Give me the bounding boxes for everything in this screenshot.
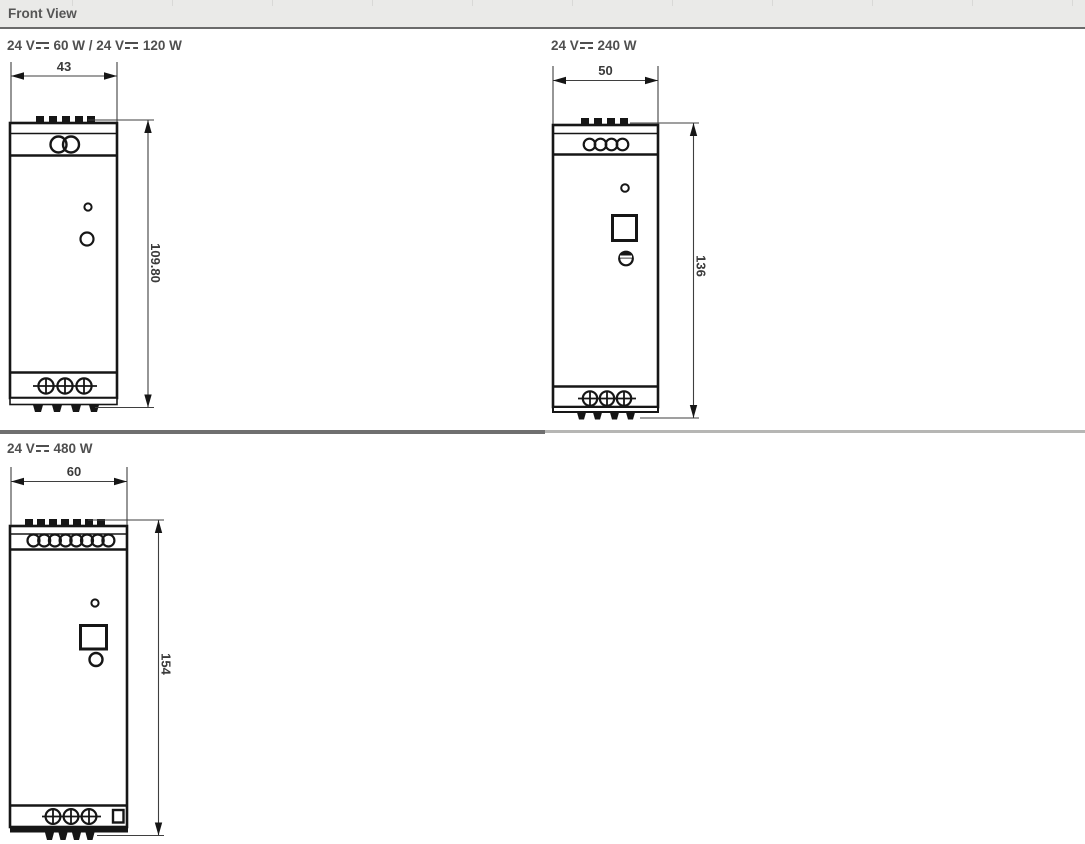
- din-clip-tooth: [593, 413, 602, 420]
- din-clip-tooth: [71, 405, 81, 412]
- bottom-strip: [10, 398, 117, 405]
- din-clip-tooth: [610, 413, 619, 420]
- device-body-outline: [10, 526, 127, 827]
- bottom-strip: [10, 827, 128, 833]
- arrowhead: [11, 478, 24, 485]
- arrowhead: [155, 823, 162, 836]
- width-dimension-value: 50: [598, 63, 612, 78]
- din-clip-tooth: [52, 405, 62, 412]
- din-clip-tooth: [59, 833, 68, 841]
- din-clip-tooth: [72, 833, 81, 841]
- bottom-strip: [553, 407, 658, 412]
- arrowhead: [645, 77, 658, 84]
- arrowhead: [144, 395, 151, 408]
- height-dimension-value: 154: [159, 653, 174, 675]
- width-dimension-value: 60: [67, 464, 81, 479]
- width-dimension-value: 43: [57, 59, 71, 74]
- device-240w-drawing: [553, 118, 658, 420]
- din-clip-tooth: [33, 405, 43, 412]
- din-clip-tooth: [89, 405, 99, 412]
- front-view-drawings-svg: 43 109.80: [0, 0, 1085, 844]
- din-clip-tooth: [626, 413, 635, 420]
- device-body-outline: [553, 125, 658, 407]
- arrowhead: [11, 72, 24, 79]
- device-60w-120w-drawing: [10, 116, 117, 412]
- din-clip-tooth: [45, 833, 54, 841]
- selector-window: [81, 626, 107, 650]
- arrowhead: [553, 77, 566, 84]
- din-clip-tooth: [577, 413, 586, 420]
- arrowhead: [690, 405, 697, 418]
- height-dimension-value: 136: [694, 255, 709, 277]
- arrowhead: [155, 520, 162, 533]
- device-480w-drawing: [10, 519, 128, 840]
- arrowhead: [104, 72, 117, 79]
- din-clip-tooth: [86, 833, 95, 841]
- connector-slot: [113, 810, 124, 823]
- device-body-outline: [10, 123, 117, 398]
- arrowhead: [690, 123, 697, 136]
- height-dimension-value: 109.80: [148, 243, 163, 283]
- arrowhead: [144, 120, 151, 133]
- arrowhead: [114, 478, 127, 485]
- front-view-section: Front View 24 V 60 W / 24 V 120 W 24 V 2…: [0, 0, 1085, 844]
- selector-window: [613, 216, 637, 241]
